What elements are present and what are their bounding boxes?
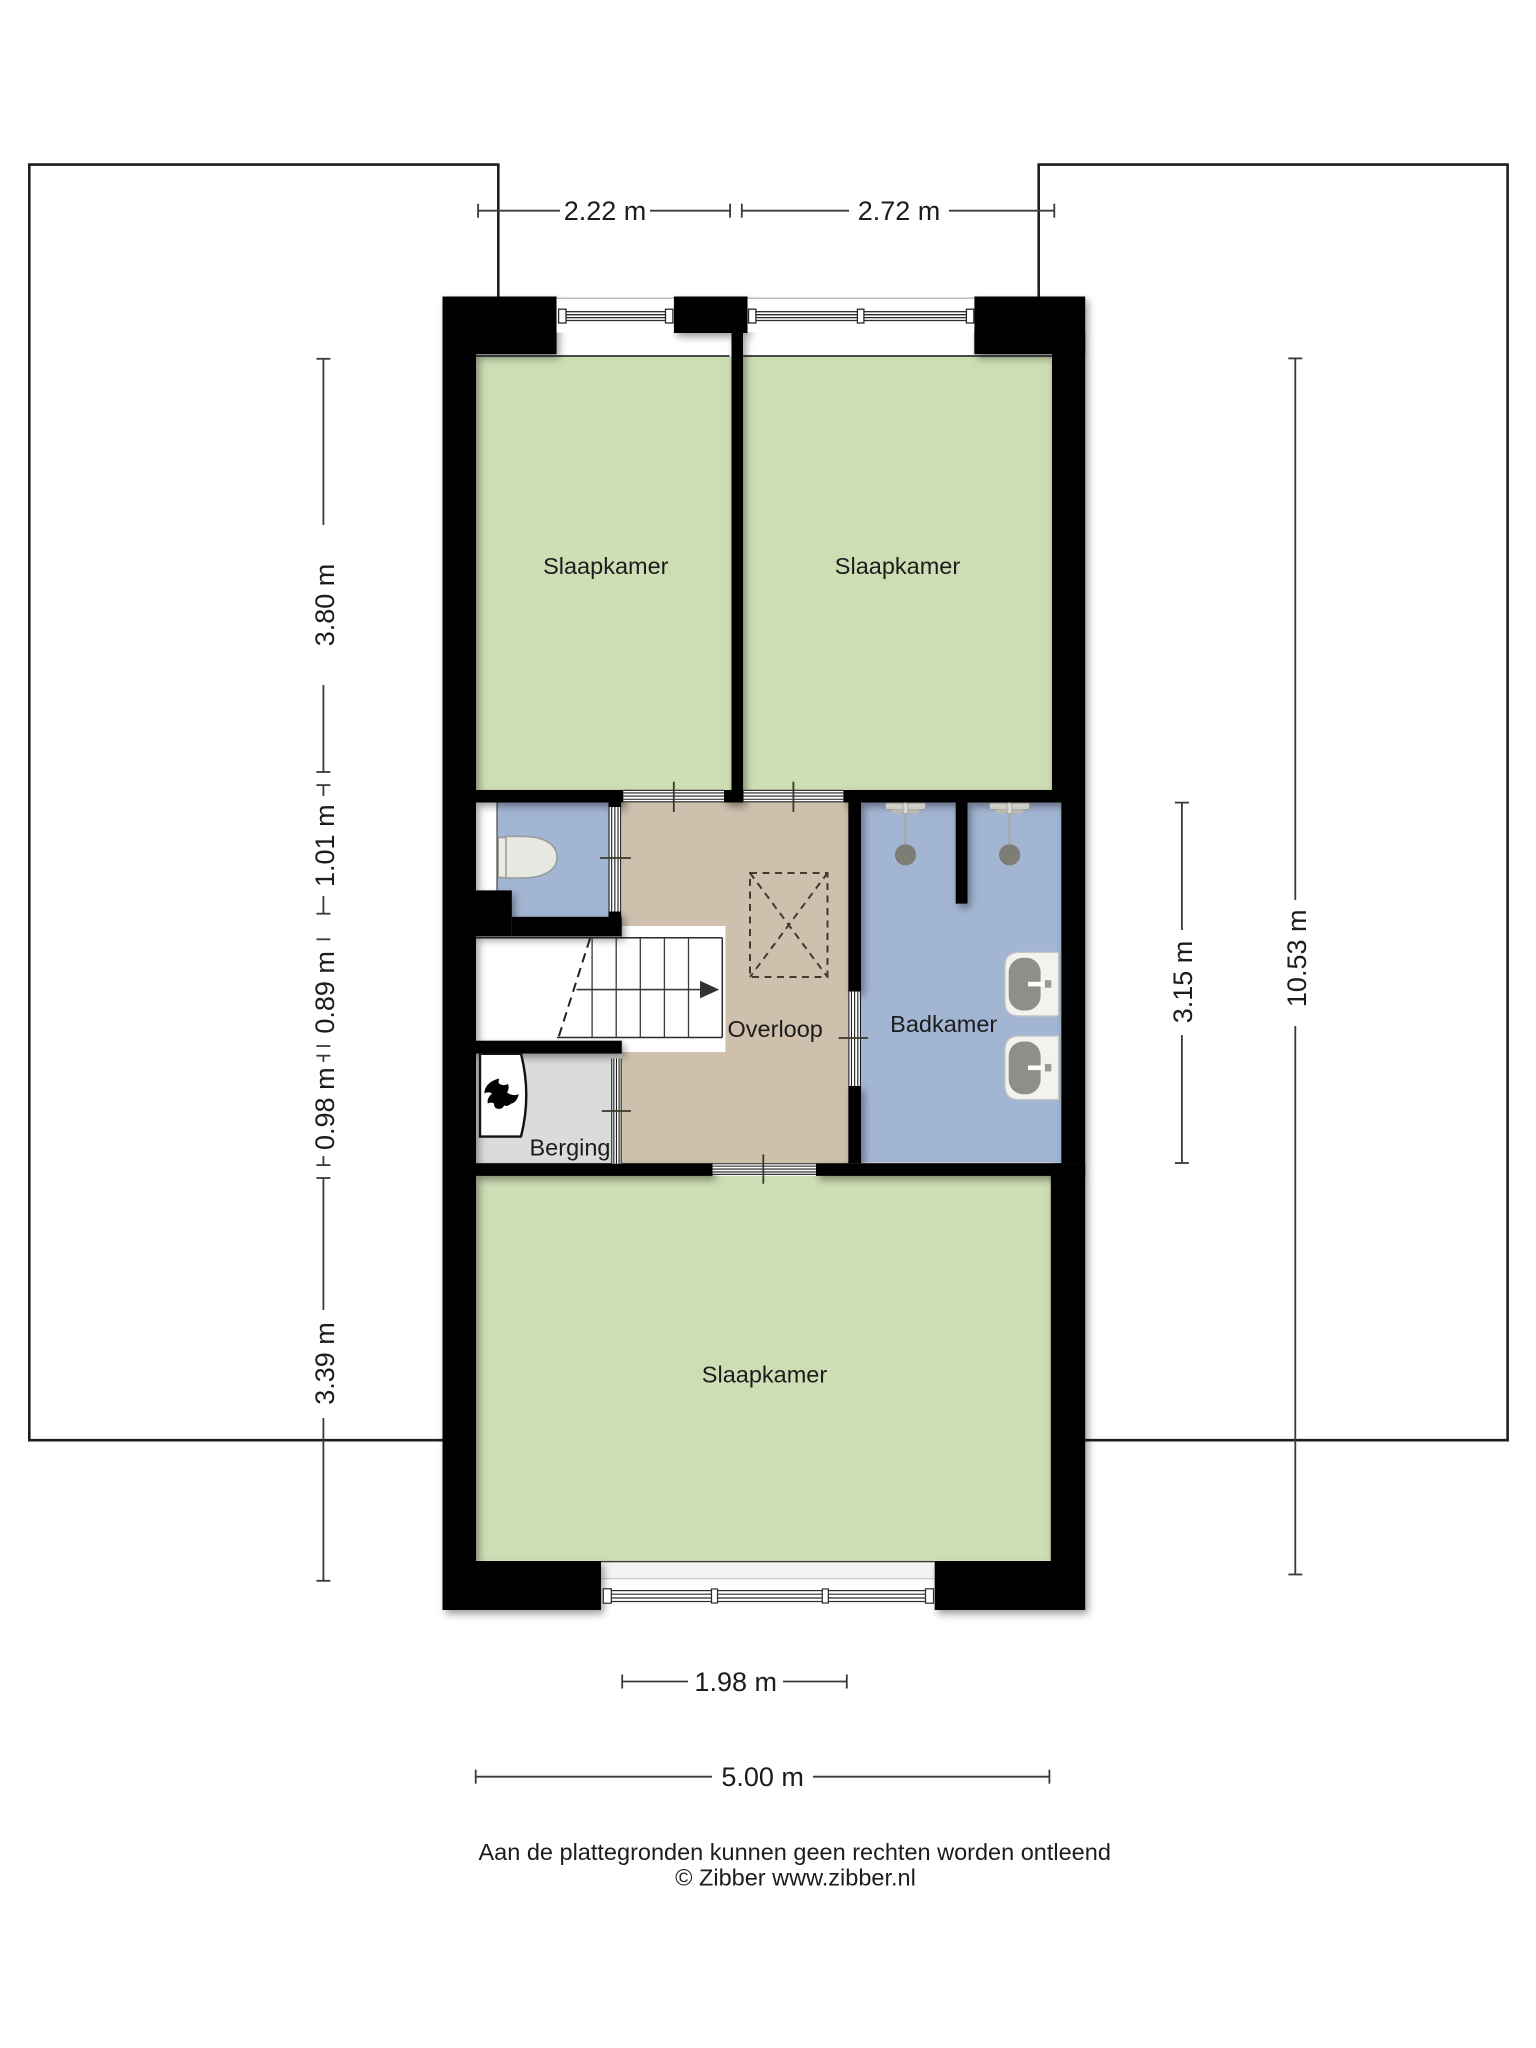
svg-text:© Zibber www.zibber.nl: © Zibber www.zibber.nl — [675, 1865, 916, 1891]
svg-text:3.15 m: 3.15 m — [1168, 941, 1198, 1024]
svg-text:Badkamer: Badkamer — [890, 1011, 997, 1037]
svg-text:2.22 m: 2.22 m — [564, 196, 647, 226]
svg-text:3.39 m: 3.39 m — [310, 1322, 340, 1405]
svg-text:1.01 m: 1.01 m — [310, 804, 340, 887]
svg-text:Berging: Berging — [530, 1135, 611, 1161]
svg-text:Slaapkamer: Slaapkamer — [702, 1362, 828, 1388]
svg-text:2.72 m: 2.72 m — [858, 196, 941, 226]
svg-text:0.98 m: 0.98 m — [310, 1067, 340, 1150]
svg-text:Slaapkamer: Slaapkamer — [835, 553, 961, 579]
svg-text:1.98 m: 1.98 m — [694, 1667, 777, 1697]
svg-text:3.80 m: 3.80 m — [310, 564, 340, 647]
svg-text:Overloop: Overloop — [728, 1016, 823, 1042]
svg-text:0.89 m: 0.89 m — [310, 951, 340, 1034]
svg-text:Slaapkamer: Slaapkamer — [543, 553, 669, 579]
svg-text:Aan de plattegronden kunnen ge: Aan de plattegronden kunnen geen rechten… — [479, 1839, 1111, 1865]
svg-text:10.53 m: 10.53 m — [1282, 910, 1312, 1008]
svg-text:5.00 m: 5.00 m — [721, 1762, 804, 1792]
